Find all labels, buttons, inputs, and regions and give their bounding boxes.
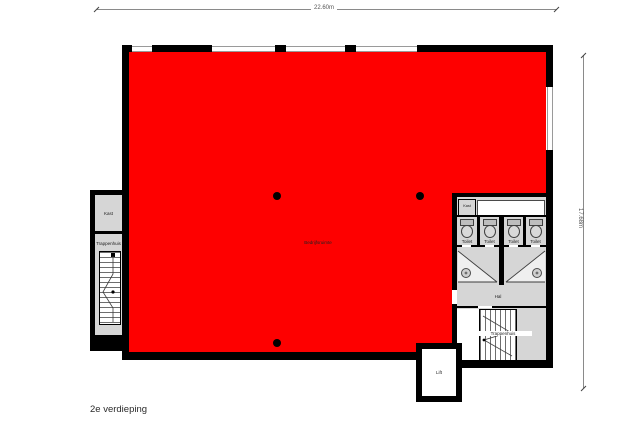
dimension-tick xyxy=(554,7,560,13)
toilet-label: Toilet xyxy=(480,239,499,244)
toilet-stall: Toilet xyxy=(480,217,499,245)
column xyxy=(416,192,424,200)
dimension-tick xyxy=(581,386,587,392)
room-kast-right-label: Kast xyxy=(458,204,476,209)
toilet-stall: Toilet xyxy=(457,217,477,245)
wall xyxy=(345,45,356,52)
washroom-right xyxy=(504,247,546,285)
toilet-fixture xyxy=(461,225,473,238)
washroom-left-fixtures xyxy=(457,247,499,285)
floorplan-canvas: 22.60m 17.68m Bedrijfsruimte Kast Trappe… xyxy=(0,0,640,433)
dimension-label-width: 22.60m xyxy=(311,5,337,11)
wall xyxy=(90,335,128,351)
wall xyxy=(452,360,553,368)
room-trappenhuis-right-label: Trappenhuis xyxy=(474,331,532,336)
room-trappenhuis-left-label: Trappenhuis xyxy=(88,241,129,246)
dimension-line-right xyxy=(583,55,584,388)
toilet-stall: Toilet xyxy=(526,217,545,245)
room-main-lower xyxy=(129,194,452,352)
toilet-label: Toilet xyxy=(504,239,523,244)
toilet-fixture xyxy=(484,225,496,238)
toilet-label: Toilet xyxy=(526,239,545,244)
door-opening xyxy=(478,306,492,308)
page-title: 2e verdieping xyxy=(90,404,147,415)
wall xyxy=(457,306,546,308)
corridor-strip xyxy=(477,200,545,216)
column xyxy=(273,339,281,347)
room-main-upper xyxy=(129,52,546,194)
toilet-label: Toilet xyxy=(457,239,477,244)
dimension-label-height: 17.68m xyxy=(577,206,583,230)
toilet-fixture xyxy=(530,225,542,238)
door-opening xyxy=(452,290,457,304)
window-segment xyxy=(547,87,553,150)
staircase-left xyxy=(99,251,121,325)
wall xyxy=(122,45,129,360)
wall xyxy=(546,150,553,368)
wall xyxy=(275,45,286,52)
column xyxy=(273,192,281,200)
wall xyxy=(152,45,212,52)
room-main-label: Bedrijfsruimte xyxy=(268,240,368,245)
washroom-right-fixtures xyxy=(504,247,546,285)
wall xyxy=(90,190,122,195)
toilet-fixture xyxy=(508,225,520,238)
room-hal-label: Hal xyxy=(477,294,519,299)
wall xyxy=(417,45,553,52)
wall xyxy=(95,231,122,234)
wall xyxy=(122,352,424,360)
room-kast-left-label: Kast xyxy=(93,211,124,216)
wall xyxy=(546,45,553,87)
toilet-stall: Toilet xyxy=(504,217,523,245)
washroom-left xyxy=(457,247,499,285)
room-lift-label: Lift xyxy=(422,370,456,375)
wall xyxy=(452,193,553,197)
stair-direction-arrow xyxy=(100,252,120,324)
